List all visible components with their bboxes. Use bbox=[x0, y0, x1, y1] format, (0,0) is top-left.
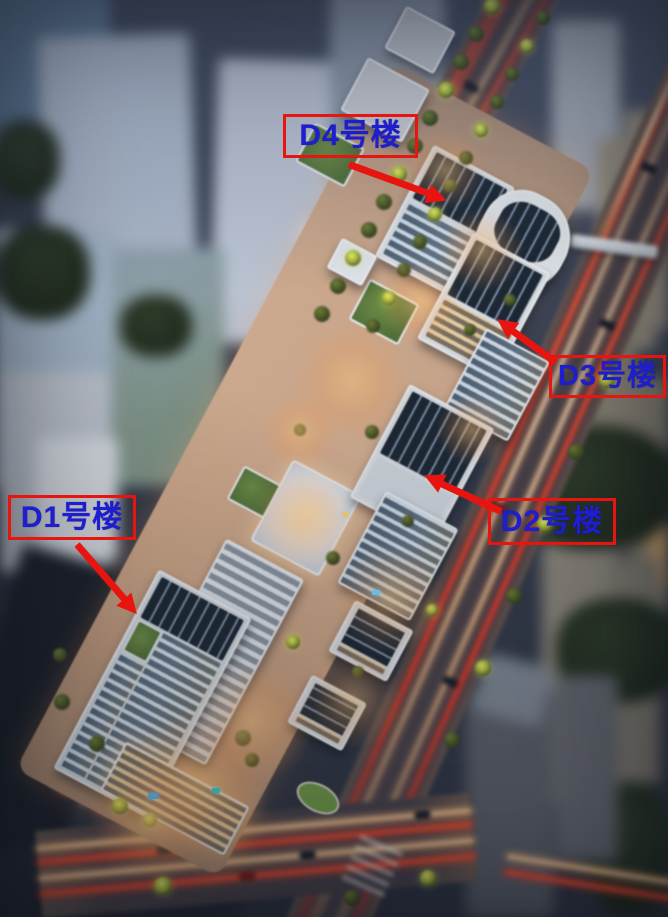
label-d4-text: D4号楼 bbox=[299, 121, 401, 151]
label-d3: D3号楼 bbox=[549, 355, 666, 398]
label-d2: D2号楼 bbox=[488, 498, 616, 545]
arrow-d1 bbox=[74, 542, 127, 602]
aerial-rendering: D4号楼 D3号楼 D2号楼 D1号楼 bbox=[0, 0, 668, 917]
label-d1-text: D1号楼 bbox=[21, 503, 123, 533]
annotation-layer: D4号楼 D3号楼 D2号楼 D1号楼 bbox=[0, 0, 668, 917]
arrow-d4 bbox=[348, 161, 430, 197]
label-d3-text: D3号楼 bbox=[558, 362, 657, 391]
label-d1: D1号楼 bbox=[8, 495, 136, 540]
label-d2-text: D2号楼 bbox=[501, 507, 603, 537]
label-d4: D4号楼 bbox=[283, 114, 418, 158]
